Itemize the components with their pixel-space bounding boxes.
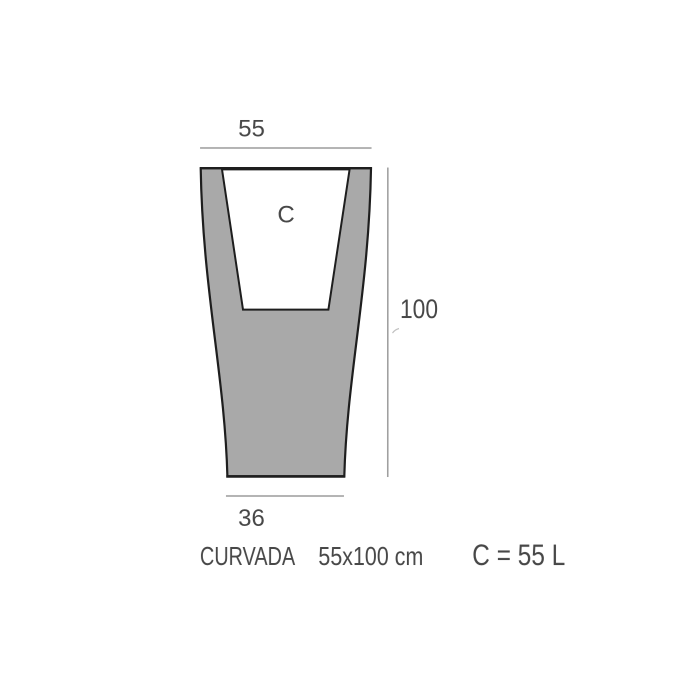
svg-text:C: C	[277, 201, 294, 228]
svg-text:C = 55 L: C = 55 L	[472, 539, 565, 572]
svg-text:55x100 cm: 55x100 cm	[318, 541, 423, 571]
svg-text:100: 100	[400, 294, 438, 324]
svg-text:36: 36	[238, 505, 265, 532]
svg-text:55: 55	[238, 115, 265, 142]
svg-text:CURVADA: CURVADA	[200, 541, 296, 571]
